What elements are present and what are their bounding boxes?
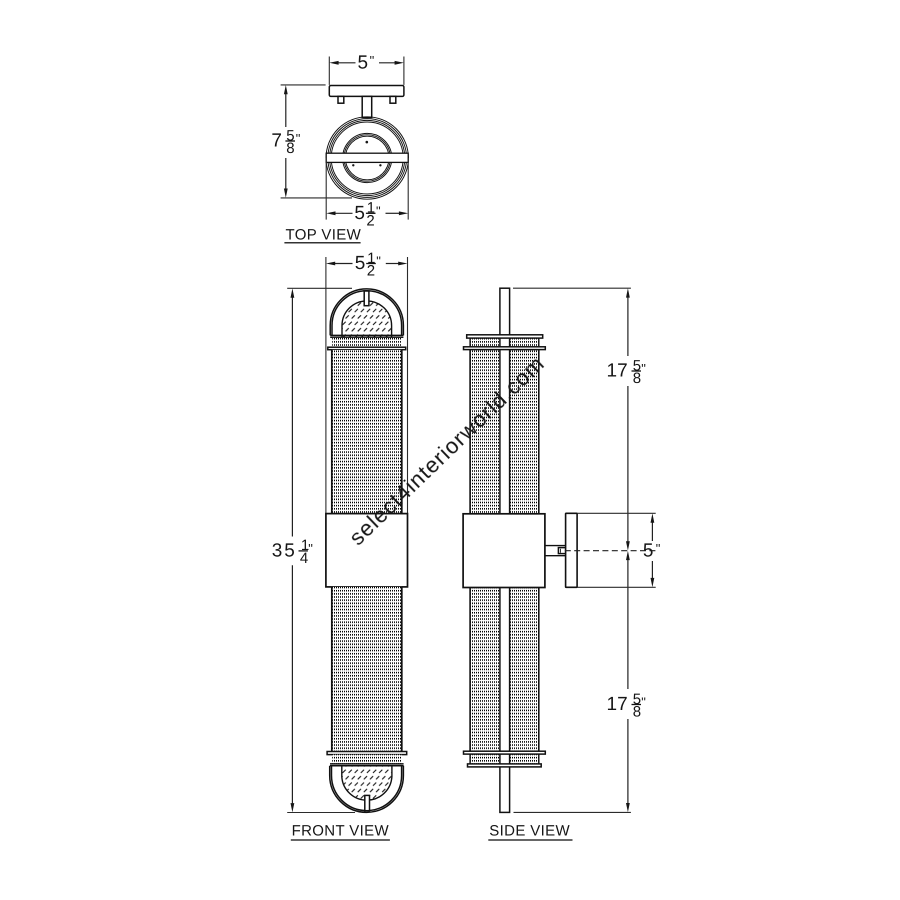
svg-text:8: 8 (286, 140, 294, 157)
svg-text:": " (641, 361, 646, 376)
svg-text:": " (376, 254, 381, 269)
svg-text:8: 8 (633, 370, 641, 387)
svg-text:": " (308, 541, 313, 556)
svg-text:35: 35 (272, 541, 297, 562)
svg-text:": " (656, 541, 661, 556)
svg-text:5: 5 (358, 53, 369, 74)
svg-text:7: 7 (271, 131, 282, 152)
svg-text:": " (376, 204, 381, 219)
svg-text:": " (370, 53, 375, 68)
svg-text:FRONT VIEW: FRONT VIEW (292, 822, 390, 839)
svg-text:": " (641, 695, 646, 710)
svg-text:17: 17 (607, 694, 628, 715)
svg-text:": " (296, 131, 301, 146)
svg-text:8: 8 (633, 704, 641, 721)
svg-text:2: 2 (366, 212, 374, 229)
svg-text:5: 5 (355, 253, 366, 274)
svg-text:2: 2 (367, 263, 375, 280)
svg-text:5: 5 (643, 540, 654, 561)
svg-text:TOP VIEW: TOP VIEW (286, 227, 362, 244)
svg-text:SIDE VIEW: SIDE VIEW (489, 822, 570, 839)
svg-text:4: 4 (300, 550, 308, 567)
svg-text:17: 17 (607, 361, 628, 382)
svg-text:5: 5 (354, 203, 365, 224)
